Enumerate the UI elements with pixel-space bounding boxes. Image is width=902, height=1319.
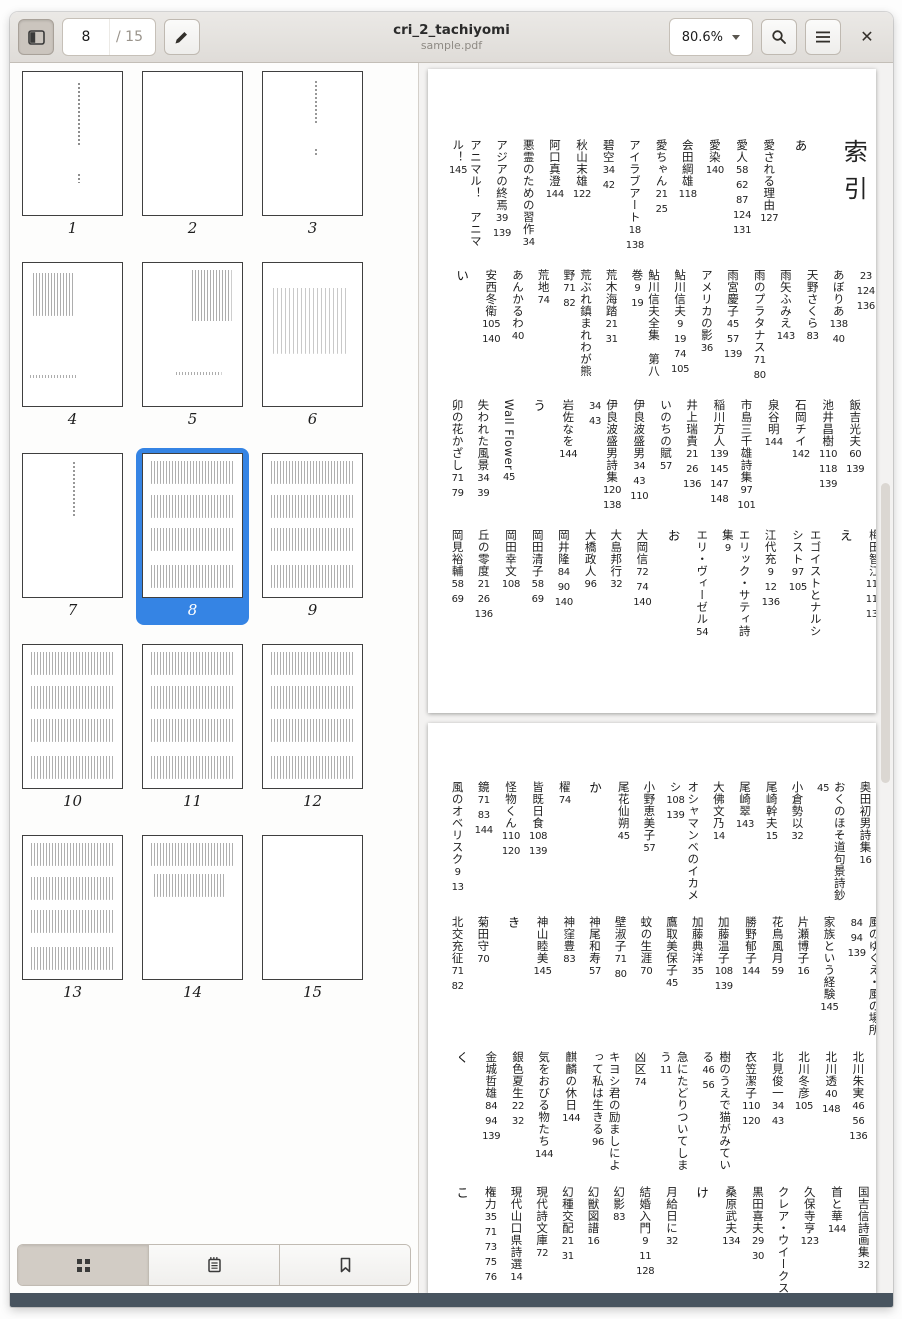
index-entry-page-number: 145 (820, 1003, 838, 1013)
index-entry-term: 安西冬衛 (484, 269, 498, 317)
index-entry-page-number: 62 (736, 181, 748, 191)
page-thumbnail[interactable] (262, 453, 363, 598)
index-entry-term: 愛人 (735, 139, 749, 163)
index-entry-page-number: 71 (452, 967, 464, 977)
index-entry: 伊良波盛男詩集1201383443 (586, 399, 621, 515)
index-entry-term: キヨシ君の励ましによって私は生きる (591, 1051, 622, 1171)
index-entry-page-number: 145 (710, 465, 728, 475)
index-entry-term: 岡田清子 (531, 529, 545, 577)
index-entry-term: 愛される理由 (762, 139, 776, 211)
index-entry-page-number: 139 (715, 982, 733, 992)
index-entry: 国吉信詩画集32 (855, 1186, 872, 1293)
thumbnail-cell-1[interactable]: 1 (16, 66, 129, 243)
index-section-header: け (692, 1186, 710, 1293)
index-entry: 鷹取美保子45 (663, 916, 680, 1036)
document-view[interactable]: 索引あ愛される理由127愛人586287124131愛染140会田綱雄118愛ち… (419, 63, 893, 1293)
index-entry-term: あんかるわ (511, 269, 525, 329)
index-entry-page-number: 26 (686, 465, 698, 475)
index-entry: 気をおびる物たち144 (535, 1051, 553, 1171)
index-entry-page-number: 138 (830, 320, 848, 330)
index-entry: 荒地74 (535, 269, 552, 385)
index-entry-term: エリ・ヴィーゼル (695, 529, 709, 625)
index-entry-term: 結婚入門 (638, 1186, 652, 1234)
index-entry: 大橋政人96 (582, 529, 599, 645)
index-entry-page-number: 97 (740, 486, 752, 496)
index-entry: 雨宮慶子4557139 (724, 269, 742, 385)
page-thumbnail[interactable] (142, 644, 243, 789)
index-entry: 勝野郁子144 (742, 916, 760, 1036)
index-entry-page-number: 139 (724, 350, 742, 360)
index-entry-page-number: 131 (733, 226, 751, 236)
index-entry-page-number: 124 (857, 287, 875, 297)
index-entry-term: 北川冬彦 (797, 1051, 811, 1099)
page-thumbnail[interactable] (142, 453, 243, 598)
index-entry-page-number: 9 (455, 868, 461, 878)
index-entry: 桑原武夫134 (722, 1186, 740, 1293)
index-entry-page-number: 34 (589, 402, 601, 412)
page-thumbnail[interactable] (262, 71, 363, 216)
index-entry-term: あぼりあ (832, 269, 846, 317)
index-entry-page-number: 58 (532, 580, 544, 590)
thumbnail-cell-7[interactable]: 7 (16, 448, 129, 625)
index-entry-page-number: 69 (452, 595, 464, 605)
index-entry: 失われた風景3439 (475, 399, 492, 515)
index-entry-page-number: 40 (833, 335, 845, 345)
index-entry-term: 久保寺亨 (803, 1186, 817, 1234)
thumbnail-cell-9[interactable]: 9 (256, 448, 369, 625)
thumbnail-cell-4[interactable]: 4 (16, 257, 129, 434)
index-entry-page-number: 22 (512, 1102, 524, 1112)
page-thumbnail[interactable] (142, 262, 243, 407)
index-entry-page-number: 138 (866, 610, 876, 620)
index-entry-page-number: 58 (452, 580, 464, 590)
index-entry-term: 小倉勢以 (790, 781, 804, 829)
index-entry: アイラブアート18138 (626, 139, 644, 255)
index-entry-page-number: 43 (633, 477, 645, 487)
index-entry-page-number: 105 (789, 583, 807, 593)
index-entry-page-number: 69 (532, 595, 544, 605)
thumbnail-page-number: 14 (183, 983, 202, 1003)
page-thumbnail[interactable] (262, 835, 363, 980)
index-entry-page-number: 94 (851, 934, 863, 944)
index-entry-page-number: 140 (482, 335, 500, 345)
index-entry-page-number: 57 (589, 967, 601, 977)
index-entry-page-number: 23 (860, 272, 872, 282)
index-entry-page-number: 144 (475, 826, 493, 836)
index-entry-term: 菊田守 (476, 916, 490, 952)
index-entry-page-number: 39 (477, 489, 489, 499)
index-entry: 雨のプラタナス7180 (751, 269, 768, 385)
index-entry-page-number: 139 (846, 465, 864, 475)
index-entry: 愛ちゃん2125 (653, 139, 670, 255)
bookmark-icon (339, 1257, 352, 1273)
index-entry-page-number: 21 (606, 320, 618, 330)
index-entry-term: 江代充 (764, 529, 778, 565)
index-entry-page-number: 26 (478, 595, 490, 605)
thumbnails-view-button[interactable] (18, 1245, 149, 1285)
thumbnail-cell-14[interactable]: 14 (136, 830, 249, 1007)
index-entry-page-number: 16 (587, 1237, 599, 1247)
index-entry-page-number: 9 (768, 568, 774, 578)
index-entry-page-number: 108 (529, 832, 547, 842)
index-entry: 卯の花かざし7179 (449, 399, 466, 515)
index-entry-term: 北川透 (824, 1051, 838, 1087)
index-entry-term: 天野さくら (806, 269, 820, 329)
index-entry: 安西冬衛105140 (482, 269, 500, 385)
index-entry-page-number: 72 (536, 1249, 548, 1259)
thumbnail-page-number: 11 (183, 792, 202, 812)
index-entry-page-number: 74 (674, 350, 686, 360)
thumbnail-cell-10[interactable]: 10 (16, 639, 129, 816)
index-title: 索引 (839, 139, 868, 255)
index-entry-page-number: 71 (615, 955, 627, 965)
index-entry-page-number: 101 (737, 501, 755, 511)
thumbnail-cell-5[interactable]: 5 (136, 257, 249, 434)
index-entry-page-number: 73 (485, 1243, 497, 1253)
index-entry-term: アジアの終焉 (495, 139, 509, 211)
index-entry: 会田綱雄118 (679, 139, 697, 255)
index-entry-page-number: 139 (529, 847, 547, 857)
index-entry-page-number: 16 (859, 856, 871, 866)
index-entry-page-number: 122 (573, 190, 591, 200)
index-entry: 大佛文乃14 (710, 781, 727, 901)
index-entry: Wall Flower45 (500, 399, 517, 515)
index-entry-page-number: 31 (606, 335, 618, 345)
index-section-header: あ (790, 139, 808, 255)
index-entry: 岡井隆8490140 (555, 529, 573, 645)
thumbnail-page-number: 4 (68, 410, 78, 430)
index-entry-term: 金城哲雄 (484, 1051, 498, 1099)
index-entry-page-number: 97 (792, 568, 804, 578)
index-entry: 幻獣図譜16 (585, 1186, 602, 1293)
index-entry-page-number: 142 (792, 450, 810, 460)
index-entry-term: 卯の花かざし (451, 399, 465, 471)
index-entry-page-number: 45 (618, 832, 630, 842)
index-entry: 銀色夏生2232 (509, 1051, 526, 1171)
index-entry-page-number: 71 (563, 284, 575, 294)
index-entry-page-number: 110 (742, 1102, 760, 1112)
index-entry-page-number: 9 (642, 1237, 648, 1247)
index-entry-page-number: 43 (589, 417, 601, 427)
index-entry-page-number: 87 (736, 196, 748, 206)
page-thumbnail[interactable] (22, 71, 123, 216)
index-entry-term: 風のゆくえ・風の場所 (867, 916, 876, 1036)
index-entry-term: 鮎川信夫 (673, 269, 687, 317)
index-entry: 江代充912136 (762, 529, 780, 645)
index-entry-term: 丘の零度 (477, 529, 491, 577)
index-entry: おくのほそ道句景詩鈔45 (814, 781, 847, 901)
index-band: 風の岬で4653124135風のゆくえ・風の場所8494139家族という経験14… (440, 916, 876, 1036)
index-entry: 皆既日食108139 (529, 781, 547, 901)
index-entry: 金城哲雄8494139 (482, 1051, 500, 1171)
index-entry: 飯吉光夫60139 (846, 399, 864, 515)
index-entry-term: 神窪豊 (562, 916, 576, 952)
index-entry-term: 権力 (484, 1186, 498, 1210)
index-entry-term: 荒地 (537, 269, 551, 293)
index-entry-page-number: 136 (762, 598, 780, 608)
index-entry-term: 衣笠潔子 (744, 1051, 758, 1099)
index-entry: 鮎川信夫91974105 (671, 269, 689, 385)
index-entry: 結婚入門911128 (636, 1186, 654, 1293)
index-entry-page-number: 32 (791, 832, 803, 842)
index-entry: 岡田清子5869 (529, 529, 546, 645)
page-thumbnail[interactable] (22, 835, 123, 980)
index-entry-page-number: 11 (660, 1066, 672, 1076)
index-entry: 北川朱実4656136 (849, 1051, 867, 1171)
thumbnail-page-number: 8 (188, 601, 198, 621)
index-entry-page-number: 84 (851, 919, 863, 929)
page-thumbnail[interactable] (22, 453, 123, 598)
index-entry-term: 北交充征 (451, 916, 465, 964)
index-entry-page-number: 34 (477, 474, 489, 484)
index-entry: 北川冬彦105 (795, 1051, 813, 1171)
index-entry: 現代山口県詩選14 (508, 1186, 525, 1293)
index-entry-page-number: 70 (640, 967, 652, 977)
index-entry-term: 凶区 (633, 1051, 647, 1075)
index-entry-term: 勝野郁子 (744, 916, 758, 964)
index-entry-term: 首と華 (830, 1186, 844, 1222)
index-entry-term: いのちの賦 (659, 399, 673, 459)
index-entry-page-number: 21 (562, 1237, 574, 1247)
index-entry-term: 幻種交配 (561, 1186, 575, 1234)
scrollbar-thumb[interactable] (881, 483, 890, 783)
thumbnail-preview (23, 263, 122, 406)
index-entry-page-number: 70 (477, 955, 489, 965)
index-entry-term: 稲川方人 (712, 399, 726, 447)
index-entry: クレア・ウイークス (775, 1186, 792, 1293)
index-entry-page-number: 75 (485, 1258, 497, 1268)
pdf-page-1: 索引あ愛される理由127愛人586287124131愛染140会田綱雄118愛ち… (428, 69, 876, 713)
index-entry-page-number: 45 (817, 784, 829, 794)
vertical-scrollbar[interactable] (878, 63, 892, 1293)
index-entry-page-number: 118 (679, 190, 697, 200)
index-entry-term: 会田綱雄 (681, 139, 695, 187)
index-entry-term: 風のオベリスク (451, 781, 465, 865)
zoom-level-label: 80.6% (682, 30, 723, 45)
page-number-input[interactable] (63, 28, 109, 46)
thumbnail-preview (263, 454, 362, 597)
index-entry: 奥田初男詩集16 (857, 781, 874, 901)
index-entry-term: 鏡 (477, 781, 491, 793)
index-entry-page-number: 144 (828, 1225, 846, 1235)
index-entry-term: 市島三千雄詩集 (740, 399, 754, 483)
index-entry: 幻種交配2131 (559, 1186, 576, 1293)
index-entry-page-number: 140 (555, 598, 573, 608)
index-entry-term: 黒田喜夫 (751, 1186, 765, 1234)
index-entry-page-number: 144 (765, 438, 783, 448)
index-entry-page-number: 71 (452, 474, 464, 484)
index-entry-page-number: 39 (496, 214, 508, 224)
index-entry: 首と華144 (828, 1186, 846, 1293)
index-entry: キヨシ君の励ましによって私は生きる96 (589, 1051, 622, 1171)
index-band: 梅田智江110117138えエゴイストとナルシシスト97105江代充912136… (440, 529, 876, 645)
index-entry-page-number: 79 (452, 489, 464, 499)
index-entry: 風のゆくえ・風の場所8494139 (848, 916, 876, 1036)
index-entry-page-number: 140 (706, 166, 724, 176)
index-entry: 家族という経験145 (820, 916, 838, 1036)
thumbnail-grid[interactable]: 123456789101112131415 (10, 63, 418, 1239)
index-entry-term: 家族という経験 (823, 916, 837, 1000)
index-entry: 現代詩文庫72 (533, 1186, 550, 1293)
thumbnail-preview (23, 645, 122, 788)
thumbnail-cell-2[interactable]: 2 (136, 66, 249, 243)
index-entry-page-number: 128 (636, 1267, 654, 1277)
index-entry: 菊田守70 (475, 916, 492, 1036)
index-entry: 秋山末雄122 (573, 139, 591, 255)
index-entry-page-number: 143 (777, 332, 795, 342)
page-thumbnail[interactable] (22, 262, 123, 407)
index-entry: 小倉勢以32 (789, 781, 806, 901)
index-entry-term: アイラブアート (628, 139, 642, 223)
index-entry-term: おくのほそ道句景詩鈔 (833, 781, 847, 901)
sidebar-view-switcher (17, 1244, 411, 1286)
index-entry-term: 壁淑子 (614, 916, 628, 952)
index-entry-page-number: 74 (538, 296, 550, 306)
index-entry-term: 片瀬博子 (796, 916, 810, 964)
index-entry: 悪霊のための習作34 (520, 139, 537, 255)
index-entry: 市島三千雄詩集97101 (737, 399, 755, 515)
thumbnail-cell-11[interactable]: 11 (136, 639, 249, 816)
index-entry: 尾崎翠143 (736, 781, 754, 901)
index-entry-term: クレア・ウイークス (777, 1186, 791, 1293)
thumbnail-cell-8[interactable]: 8 (136, 448, 249, 625)
index-entry-page-number: 58 (736, 166, 748, 176)
index-entry-page-number: 123 (801, 1237, 819, 1247)
index-entry-page-number: 9 (634, 284, 640, 294)
index-entry-page-number: 83 (807, 332, 819, 342)
index-band: 小串伸夫16奥田初男詩集16おくのほそ道句景詩鈔45小倉勢以32尾崎幹夫15尾崎… (440, 781, 876, 901)
annotations-view-button[interactable] (149, 1245, 280, 1285)
thumbnail-preview (143, 454, 242, 597)
index-entry-page-number: 9 (725, 544, 731, 554)
index-entry-page-number: 57 (660, 462, 672, 472)
index-entry-page-number: 82 (452, 982, 464, 992)
index-entry-term: 悪霊のための習作 (522, 139, 536, 235)
index-entry-page-number: 34 (772, 1102, 784, 1112)
index-entry-page-number: 46 (702, 1066, 714, 1076)
index-entry-page-number: 117 (866, 595, 876, 605)
index-entry-term: 伊良波盛男詩集 (605, 399, 619, 483)
annotate-button[interactable] (164, 19, 200, 55)
search-icon (771, 29, 787, 45)
index-entry-term: 加藤典洋 (691, 916, 705, 964)
index-entry-term: 幻獣図譜 (586, 1186, 600, 1234)
index-entry-page-number: 34 (603, 166, 615, 176)
thumbnail-cell-15[interactable]: 15 (256, 830, 369, 1007)
index-entry: 荒ぶれ鎮まれわが熊野7182 (561, 269, 594, 385)
thumbnail-cell-3[interactable]: 3 (256, 66, 369, 243)
index-entry-page-number: 144 (742, 967, 760, 977)
index-entry-page-number: 74 (634, 1078, 646, 1088)
index-entry-page-number: 145 (449, 166, 467, 176)
page-number-box: / 15 (62, 18, 156, 56)
page-thumbnail[interactable] (142, 71, 243, 216)
sidebar-icon (28, 30, 45, 45)
index-entry-term: 雨宮慶子 (726, 269, 740, 317)
index-entry-page-number: 108 (666, 796, 684, 806)
thumbnail-preview (23, 72, 122, 215)
index-entry: アジアの終焉39139 (493, 139, 511, 255)
index-entry: 阿口真澄144 (546, 139, 564, 255)
index-section-header: く (452, 1051, 470, 1171)
index-entry-term: 井上瑞貴 (685, 399, 699, 447)
search-button[interactable] (761, 19, 797, 55)
index-entry-page-number: 124 (733, 211, 751, 221)
index-entry-term: 神尾和寿 (588, 916, 602, 964)
index-entry-page-number: 60 (849, 450, 861, 460)
index-entry-term: Wall Flower (502, 399, 516, 470)
index-entry-page-number: 147 (710, 480, 728, 490)
index-entry-term: 岡井隆 (557, 529, 571, 565)
index-entry: 尾花仙朔45 (615, 781, 632, 901)
index-entry-page-number: 45 (503, 473, 515, 483)
bookmarks-view-button[interactable] (280, 1245, 410, 1285)
zoom-dropdown[interactable]: 80.6% (669, 18, 753, 56)
page-thumbnail[interactable] (262, 262, 363, 407)
index-entry-term: 岡見裕輔 (451, 529, 465, 577)
thumbnail-page-number: 15 (303, 983, 322, 1003)
thumbnail-preview (263, 72, 362, 215)
index-entry: 井上瑞貴2126136 (683, 399, 701, 515)
note-icon (207, 1257, 222, 1273)
index-entry-term: 雨のプラタナス (753, 269, 767, 353)
index-entry-page-number: 74 (559, 796, 571, 806)
pencil-icon (174, 30, 189, 45)
thumbnail-page-number: 1 (68, 219, 78, 239)
index-entry-term: 大佛文乃 (712, 781, 726, 829)
thumbnail-page-number: 13 (63, 983, 82, 1003)
page-thumbnail[interactable] (262, 644, 363, 789)
index-entry-page-number: 21 (478, 580, 490, 590)
index-entry-page-number: 139 (482, 1132, 500, 1142)
index-entry: 愛人586287124131 (733, 139, 751, 255)
index-entry-page-number: 32 (666, 1237, 678, 1247)
menu-button[interactable] (805, 19, 841, 55)
index-entry-page-number: 21 (656, 190, 668, 200)
index-entry-page-number: 83 (613, 1213, 625, 1223)
thumbnail-cell-6[interactable]: 6 (256, 257, 369, 434)
index-entry-term: 尾崎翠 (738, 781, 752, 817)
index-section-header: き (503, 916, 521, 1036)
index-entry-page-number: 145 (533, 967, 551, 977)
thumbnail-preview (263, 263, 362, 406)
index-entry-page-number: 25 (656, 205, 668, 215)
index-entry-page-number: 74 (636, 583, 648, 593)
index-entry-page-number: 29 (752, 1237, 764, 1247)
page-thumbnail[interactable] (22, 644, 123, 789)
index-entry: 大島邦行32 (608, 529, 625, 645)
index-entry-page-number: 105 (795, 1102, 813, 1112)
thumbnail-preview (143, 836, 242, 979)
sidebar-toggle-button[interactable] (18, 19, 54, 55)
index-entry-page-number: 59 (772, 967, 784, 977)
index-entry: 岡見裕輔5869 (449, 529, 466, 645)
index-entry-term: 鷹取美保子 (665, 916, 679, 976)
page-thumbnail[interactable] (142, 835, 243, 980)
close-window-button[interactable]: ✕ (849, 19, 885, 55)
hamburger-icon (816, 31, 830, 43)
thumbnail-cell-13[interactable]: 13 (16, 830, 129, 1007)
index-entry-page-number: 34 (633, 462, 645, 472)
index-entry: あんかるわ40 (509, 269, 526, 385)
thumbnail-cell-12[interactable]: 12 (256, 639, 369, 816)
window-subtitle: sample.pdf (421, 39, 482, 52)
index-entry-term: 尾崎幹夫 (765, 781, 779, 829)
index-entry-page-number: 105 (671, 365, 689, 375)
index-entry: エゴイストとナルシシスト97105 (789, 529, 824, 645)
index-entry-page-number: 136 (683, 480, 701, 490)
index-entry-page-number: 45 (727, 320, 739, 330)
